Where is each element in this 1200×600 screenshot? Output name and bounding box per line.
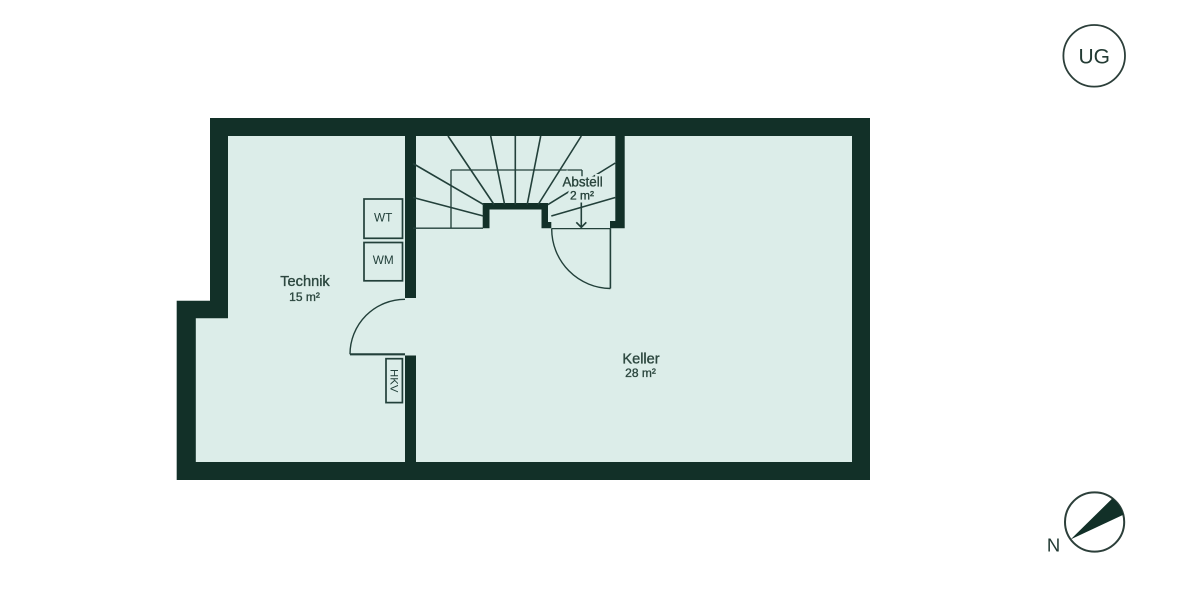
svg-text:2 m²: 2 m² — [570, 189, 594, 203]
svg-text:15 m²: 15 m² — [289, 290, 320, 304]
svg-text:Technik: Technik — [280, 274, 330, 290]
svg-text:N: N — [1047, 535, 1060, 556]
svg-text:28 m²: 28 m² — [625, 366, 656, 380]
svg-text:WM: WM — [373, 253, 394, 267]
svg-text:Abstell: Abstell — [562, 174, 602, 189]
svg-text:HKV: HKV — [387, 369, 399, 393]
svg-text:UG: UG — [1078, 45, 1110, 68]
svg-text:WT: WT — [374, 211, 392, 225]
